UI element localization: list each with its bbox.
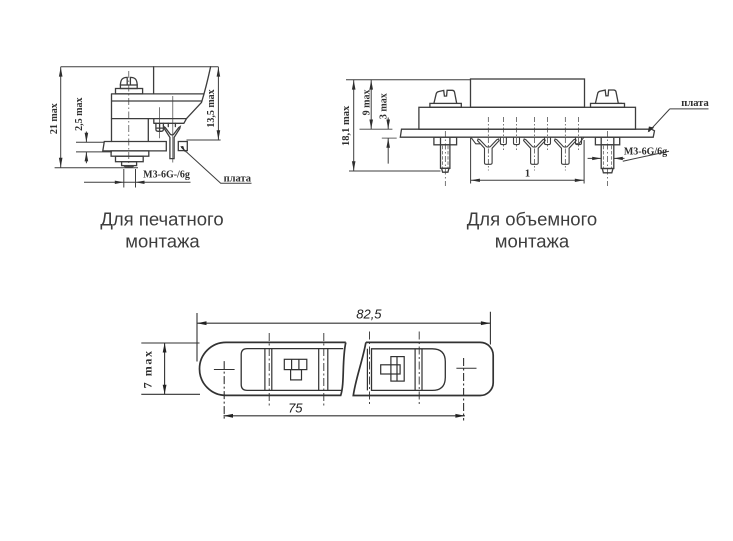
svg-text:Для печатного: Для печатного — [100, 209, 223, 230]
svg-text:82,5: 82,5 — [356, 307, 382, 322]
svg-text:плата: плата — [681, 98, 709, 109]
svg-text:18,1 max: 18,1 max — [341, 105, 352, 146]
svg-text:3 max: 3 max — [378, 93, 389, 119]
svg-text:М3-6G/6g: М3-6G/6g — [624, 146, 667, 157]
svg-text:плата: плата — [224, 174, 252, 185]
svg-text:75: 75 — [288, 400, 303, 415]
svg-text:21 max: 21 max — [49, 103, 60, 134]
svg-text:9 max: 9 max — [361, 89, 372, 115]
svg-text:Для объемного: Для объемного — [467, 209, 597, 230]
svg-text:монтажа: монтажа — [125, 231, 200, 252]
svg-text:М3-6G-/6g: М3-6G-/6g — [143, 170, 190, 181]
svg-text:монтажа: монтажа — [495, 231, 570, 252]
svg-text:2,5 max: 2,5 max — [74, 98, 85, 131]
svg-text:1: 1 — [525, 169, 530, 180]
svg-text:13,5 max: 13,5 max — [206, 89, 217, 127]
svg-text:7 max: 7 max — [141, 349, 155, 388]
